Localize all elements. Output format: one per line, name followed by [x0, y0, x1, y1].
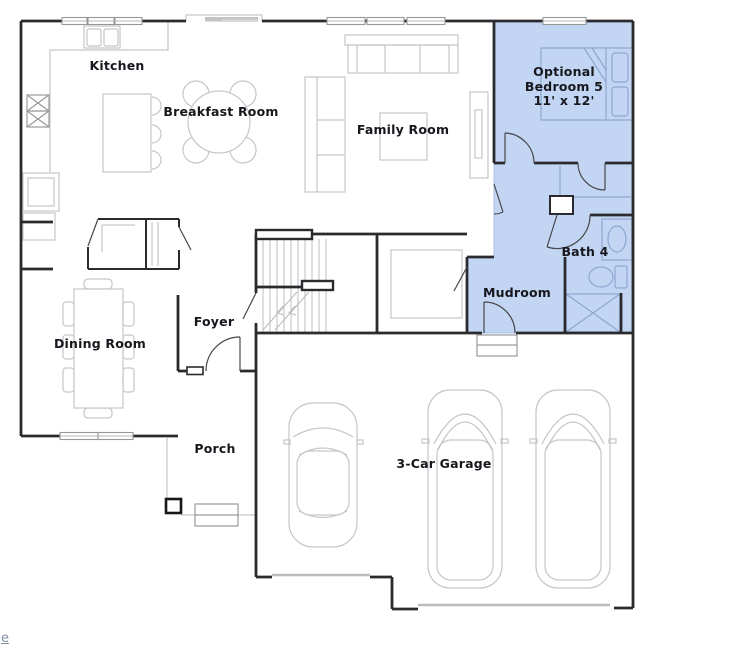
room-label-bedroom5-line2: Bedroom 5 — [525, 79, 603, 94]
room-label-porch: Porch — [194, 441, 235, 456]
bay-window-band — [222, 20, 258, 23]
pantry-shelves — [102, 225, 135, 252]
room-label-kitchen: Kitchen — [89, 58, 144, 73]
sofa-back — [345, 35, 458, 45]
room-label-garage: 3-Car Garage — [396, 456, 491, 471]
floor-plan: Kitchen Breakfast Room Family Room Optio… — [0, 0, 752, 655]
room-label-mudroom: Mudroom — [483, 285, 551, 300]
island-stool — [152, 125, 161, 143]
door-jamb — [187, 367, 203, 375]
loveseat-cushions — [317, 77, 345, 192]
dining-chair — [63, 302, 74, 326]
room-label-breakfast: Breakfast Room — [163, 104, 278, 119]
dining-chair — [63, 368, 74, 392]
room-label-bedroom5-line1: Optional — [533, 64, 595, 79]
car-icon — [422, 390, 508, 588]
garage-steps — [477, 335, 517, 356]
tv-console — [470, 92, 488, 178]
island-stool — [152, 151, 161, 169]
dining-chair — [84, 279, 112, 289]
range-icon — [27, 95, 49, 127]
room-label-family: Family Room — [357, 122, 449, 137]
sofa-cushions — [357, 45, 449, 73]
dining-chair — [123, 368, 134, 392]
stair-handrails — [256, 230, 333, 290]
dining-chair — [84, 408, 112, 418]
partial-link[interactable]: e — [1, 631, 9, 646]
porch-column — [166, 499, 181, 513]
dining-chair — [123, 302, 134, 326]
kitchen-sink-basin — [87, 29, 101, 46]
linen-closet — [550, 196, 573, 214]
loveseat — [305, 77, 345, 192]
porch-step — [195, 504, 238, 526]
pantry-door-right — [179, 227, 191, 250]
room-label-bath4: Bath 4 — [561, 244, 608, 259]
island-stool — [152, 97, 161, 115]
bay-window — [186, 15, 262, 22]
pantry-door-left — [88, 219, 98, 246]
front-door — [206, 337, 240, 371]
storage-shelf — [391, 250, 462, 318]
kitchen-cabinet — [23, 213, 55, 240]
kitchen-island — [103, 94, 151, 172]
car-icon — [530, 390, 616, 588]
refrigerator-inner — [28, 178, 54, 206]
kitchen-sink-basin — [104, 29, 118, 46]
room-label-bedroom5-dimensions: 11' x 12' — [533, 93, 594, 108]
pantry-shelves — [152, 222, 158, 266]
tv — [475, 110, 482, 158]
car-icon — [284, 403, 363, 547]
stair-closet-door — [243, 293, 256, 319]
sofa — [348, 45, 458, 73]
room-label-foyer: Foyer — [194, 314, 235, 329]
breakfast-table — [188, 91, 250, 153]
storage-door — [454, 267, 467, 291]
room-label-dining: Dining Room — [54, 336, 146, 351]
